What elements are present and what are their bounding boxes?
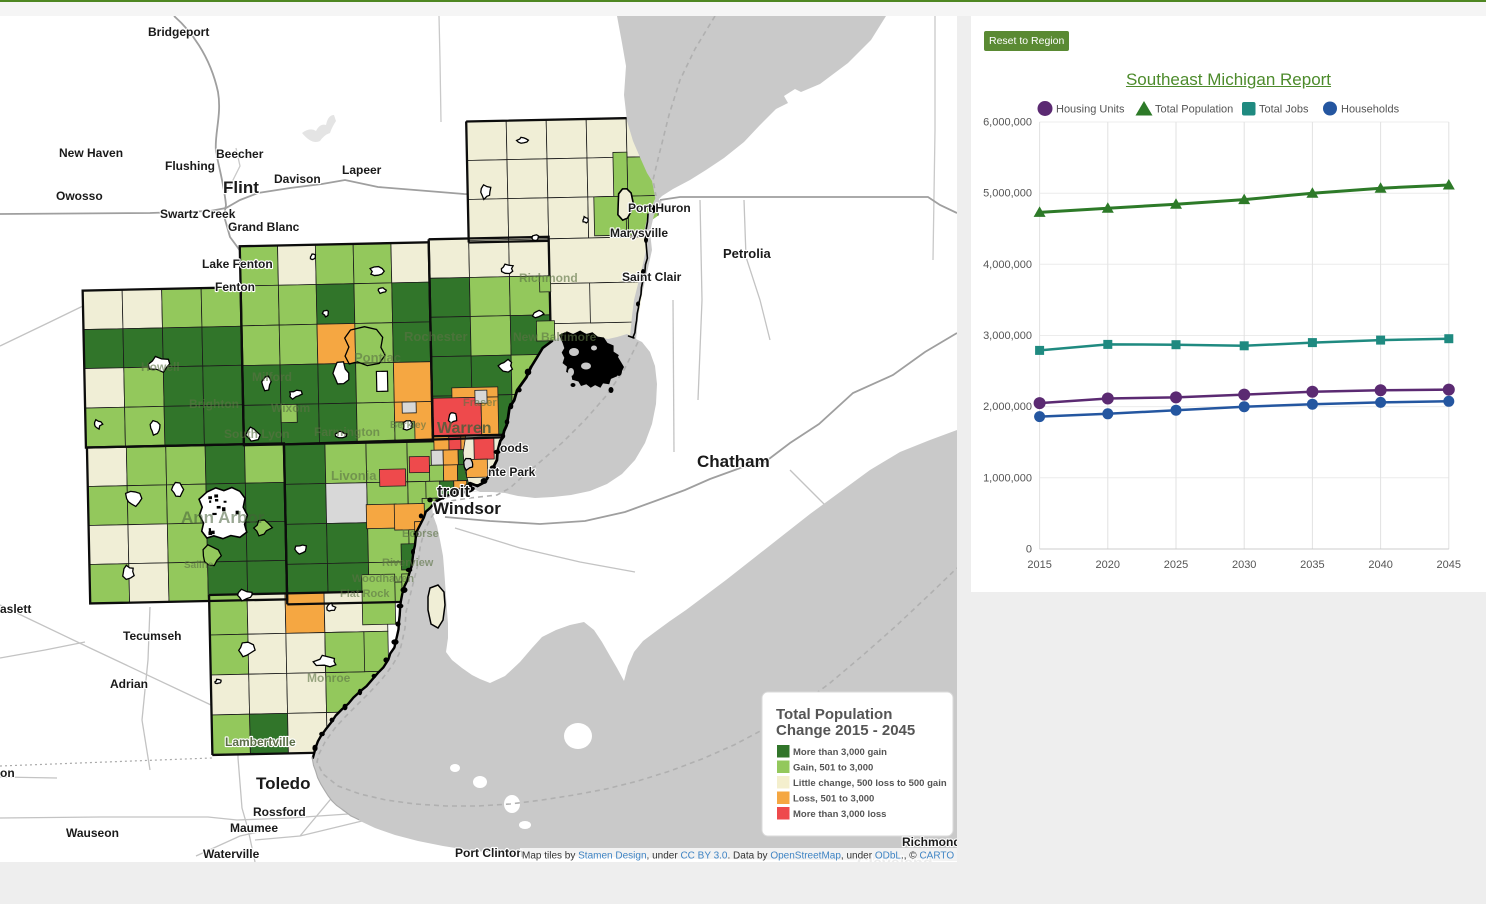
svg-text:3,000,000: 3,000,000 [983,330,1032,342]
svg-text:Toledo: Toledo [256,774,310,793]
svg-text:Adrian: Adrian [110,677,148,691]
svg-text:Flint: Flint [223,178,259,197]
svg-text:Swartz Creek: Swartz Creek [160,207,236,221]
svg-text:6,000,000: 6,000,000 [983,117,1032,129]
svg-text:Woodhaven: Woodhaven [352,573,414,585]
svg-text:Rochester: Rochester [404,329,468,344]
svg-text:2045: 2045 [1437,559,1461,571]
svg-text:Beecher: Beecher [216,147,264,161]
svg-text:Richmond: Richmond [519,271,578,285]
svg-text:oods: oods [500,441,529,455]
svg-text:Fraser: Fraser [463,397,497,409]
svg-text:1,000,000: 1,000,000 [983,472,1032,484]
svg-text:Davison: Davison [274,172,321,186]
svg-text:Total Population: Total Population [776,706,892,723]
svg-text:Total Population: Total Population [1155,104,1233,116]
svg-text:Riverview: Riverview [382,557,434,569]
svg-text:Farmington: Farmington [314,425,380,439]
svg-text:2,000,000: 2,000,000 [983,401,1032,413]
svg-text:Owosso: Owosso [56,189,103,203]
svg-text:Warren: Warren [437,420,492,437]
svg-text:Flushing: Flushing [165,159,215,173]
svg-text:Petrolia: Petrolia [723,246,771,261]
svg-text:Saline: Saline [184,560,214,571]
svg-text:New Haven: New Haven [59,146,123,160]
svg-text:Chatham: Chatham [697,452,770,471]
svg-text:0: 0 [1026,544,1032,556]
svg-text:Little change, 500 loss to 500: Little change, 500 loss to 500 gain [793,778,947,789]
svg-text:aslett: aslett [0,602,31,616]
svg-text:Rossford: Rossford [253,805,306,819]
svg-text:Housing Units: Housing Units [1056,104,1125,116]
svg-text:New Baltimore: New Baltimore [513,330,597,344]
svg-text:Wixom: Wixom [271,401,310,415]
svg-text:2015: 2015 [1027,559,1051,571]
svg-text:Milford: Milford [252,370,292,384]
svg-text:Waterville: Waterville [203,847,260,861]
svg-text:Map tiles by Stamen Design, un: Map tiles by Stamen Design, under CC BY … [522,851,954,862]
svg-text:Households: Households [1341,104,1400,116]
svg-text:More than 3,000 loss: More than 3,000 loss [793,809,886,820]
svg-text:2020: 2020 [1096,559,1120,571]
svg-text:2035: 2035 [1300,559,1324,571]
svg-text:Total Jobs: Total Jobs [1259,104,1309,116]
svg-text:Richmond: Richmond [902,835,957,849]
svg-text:2025: 2025 [1164,559,1188,571]
svg-text:5,000,000: 5,000,000 [983,188,1032,200]
svg-text:Livonia: Livonia [331,468,377,483]
svg-text:Pontiac: Pontiac [354,350,401,365]
svg-text:Lambertville: Lambertville [225,735,296,749]
svg-text:Change 2015 - 2045: Change 2015 - 2045 [776,722,915,739]
svg-text:Lapeer: Lapeer [342,163,382,177]
svg-text:Berkley: Berkley [390,420,427,431]
svg-text:Grand Blanc: Grand Blanc [228,220,300,234]
svg-text:Lake Fenton: Lake Fenton [202,257,273,271]
svg-text:Fenton: Fenton [215,280,255,294]
svg-text:on: on [0,766,15,780]
svg-text:Monroe: Monroe [307,671,351,685]
svg-text:2030: 2030 [1232,559,1256,571]
svg-text:Flat Rock: Flat Rock [340,588,390,600]
svg-text:Loss, 501 to 3,000: Loss, 501 to 3,000 [793,794,874,805]
svg-text:Howell: Howell [141,360,180,374]
svg-text:Port Clinton: Port Clinton [455,846,524,860]
svg-text:Gain, 501 to 3,000: Gain, 501 to 3,000 [793,763,873,774]
svg-text:Ecorse: Ecorse [402,528,439,540]
svg-text:Ann Arbor: Ann Arbor [181,508,265,527]
svg-text:4,000,000: 4,000,000 [983,259,1032,271]
svg-text:Wauseon: Wauseon [66,826,119,840]
svg-text:Maumee: Maumee [230,821,278,835]
svg-text:Bridgeport: Bridgeport [148,25,209,39]
svg-text:Saint Clair: Saint Clair [622,270,682,284]
svg-text:Port Huron: Port Huron [628,201,691,215]
svg-text:2040: 2040 [1368,559,1392,571]
svg-text:More than 3,000 gain: More than 3,000 gain [793,747,887,758]
svg-text:Brighton: Brighton [189,397,239,411]
svg-text:Marysville: Marysville [610,226,668,240]
svg-text:nte Park: nte Park [488,465,536,479]
svg-text:South Lyon: South Lyon [224,427,290,441]
svg-text:Tecumseh: Tecumseh [123,629,181,643]
svg-text:Windsor: Windsor [433,499,501,518]
